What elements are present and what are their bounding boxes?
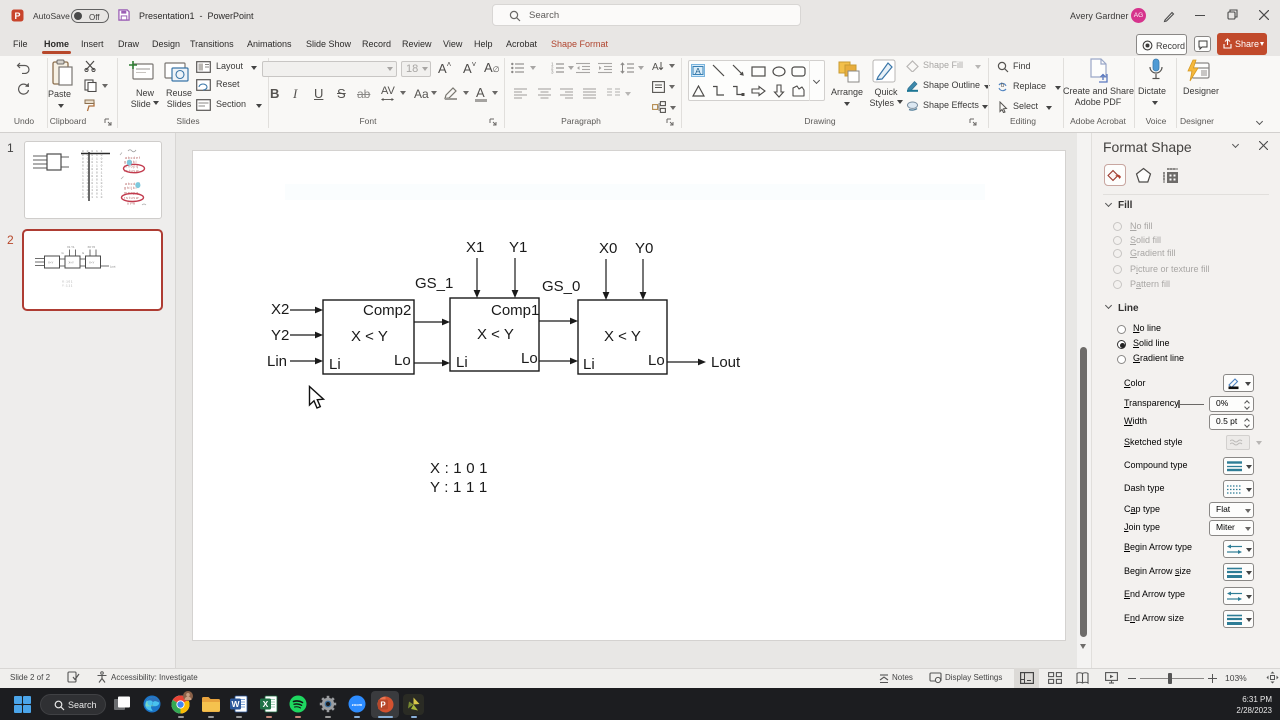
svg-text:X1: X1 — [466, 239, 484, 256]
svg-text:X < Y: X < Y — [477, 326, 514, 343]
svg-text:A: A — [695, 66, 701, 76]
svg-text:G: G — [62, 251, 64, 255]
svg-text:G: G — [82, 251, 84, 255]
svg-text:Y2: Y2 — [271, 327, 289, 344]
svg-text:X : 1 0 1: X : 1 0 1 — [430, 460, 488, 477]
svg-text:X1 Y1: X1 Y1 — [67, 245, 75, 249]
svg-text:Lout: Lout — [711, 354, 741, 371]
svg-text:X<Y: X<Y — [69, 261, 74, 265]
svg-text:01110: 01110 — [82, 196, 103, 199]
svg-text:X < Y: X < Y — [351, 328, 388, 345]
svg-text:Y1: Y1 — [509, 239, 527, 256]
svg-text:Lo: Lo — [394, 352, 411, 369]
svg-text:Comp1: Comp1 — [491, 302, 539, 319]
svg-text:X < Y: X < Y — [604, 328, 641, 345]
svg-text:Li: Li — [329, 356, 341, 373]
svg-text:g h i j k l: g h i j k l — [124, 186, 137, 190]
svg-text:X2: X2 — [271, 301, 289, 318]
svg-text:Li: Li — [456, 354, 468, 371]
svg-text:P: P — [14, 11, 20, 21]
svg-text:W: W — [231, 699, 240, 709]
svg-text:3: 3 — [551, 70, 554, 74]
svg-text:X0 Y0: X0 Y0 — [88, 245, 96, 249]
svg-text:P: P — [380, 701, 386, 710]
svg-text:00011: 00011 — [82, 150, 103, 153]
svg-text:Li: Li — [583, 356, 595, 373]
svg-text:X: X — [263, 699, 269, 709]
svg-text:Lout: Lout — [110, 265, 116, 269]
svg-text:Lo: Lo — [648, 352, 665, 369]
svg-text:Lo: Lo — [521, 350, 538, 367]
svg-text:r s t u v w: r s t u v w — [124, 196, 139, 200]
svg-text:Lin: Lin — [267, 353, 287, 370]
svg-text:X0: X0 — [599, 240, 617, 257]
svg-text:zoom: zoom — [352, 702, 363, 707]
svg-text:GS_1: GS_1 — [415, 275, 453, 292]
svg-text:X<Y: X<Y — [48, 261, 53, 265]
svg-text:Y0: Y0 — [635, 240, 653, 257]
svg-text:GS_0: GS_0 — [542, 278, 580, 295]
svg-text:Comp2: Comp2 — [363, 302, 411, 319]
svg-text:A: A — [652, 62, 659, 72]
svg-text:X<Y: X<Y — [89, 261, 94, 265]
svg-text:Y : 1 1 1: Y : 1 1 1 — [62, 284, 73, 288]
svg-text:Y : 1 1 1: Y : 1 1 1 — [430, 479, 487, 496]
